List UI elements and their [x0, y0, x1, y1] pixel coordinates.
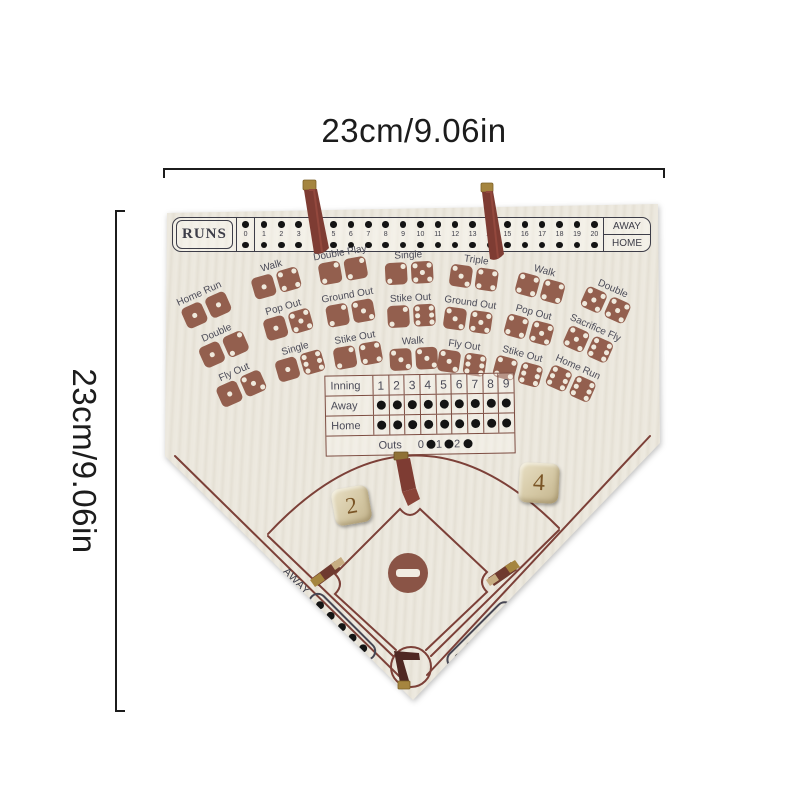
- pin-hole-dot: [464, 640, 475, 651]
- field-diagram: [165, 204, 660, 700]
- outfield-arc: [268, 455, 559, 534]
- home-plate-circle: [391, 647, 431, 687]
- pitcher-rubber: [396, 569, 420, 577]
- top-dimension-label: 23cm/9.06in: [163, 112, 665, 150]
- top-dimension-line: [163, 168, 665, 170]
- pin-hole-dot: [475, 630, 486, 641]
- product-image: 23cm/9.06in 23cm/9.06in RUNS 01234567891…: [0, 0, 800, 800]
- pin-hole-dot: [315, 599, 326, 610]
- wooden-die-2: 2: [330, 484, 373, 527]
- left-foul-line-inner: [268, 536, 393, 656]
- pin-hole-dot: [485, 619, 496, 630]
- pin-hole-dot: [326, 610, 337, 621]
- pin-hole-dot: [358, 643, 369, 654]
- left-dimension-line: [115, 210, 117, 712]
- game-board: RUNS 01234567891011121314151617181920 AW…: [165, 204, 660, 700]
- pin-hole-dot: [453, 651, 464, 662]
- right-foul-line-inner: [431, 530, 559, 656]
- wooden-die-4: 4: [518, 462, 560, 504]
- left-dimension-label: 23cm/9.06in: [65, 368, 103, 553]
- pin-hole-dot: [336, 621, 347, 632]
- pin-hole-dot: [496, 608, 507, 619]
- board-surface: RUNS 01234567891011121314151617181920 AW…: [165, 204, 660, 700]
- pin-hole-dot: [347, 632, 358, 643]
